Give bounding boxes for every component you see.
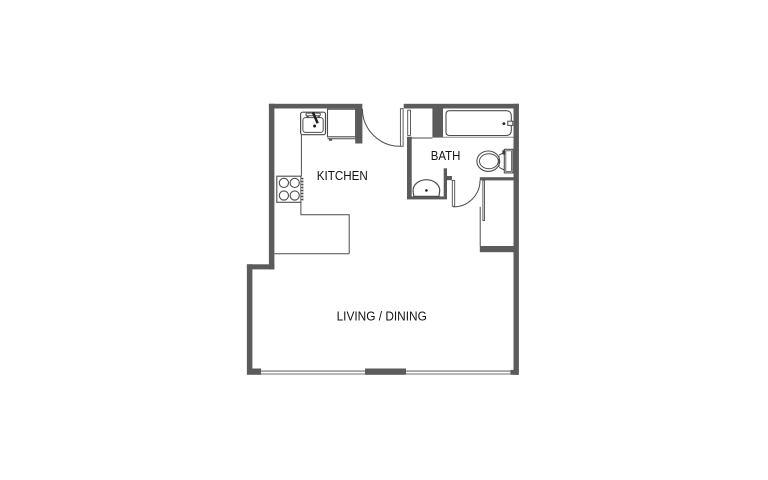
svg-text:KITCHEN: KITCHEN — [317, 168, 368, 183]
svg-text:BATH: BATH — [431, 148, 461, 163]
svg-text:LIVING / DINING: LIVING / DINING — [337, 309, 427, 324]
